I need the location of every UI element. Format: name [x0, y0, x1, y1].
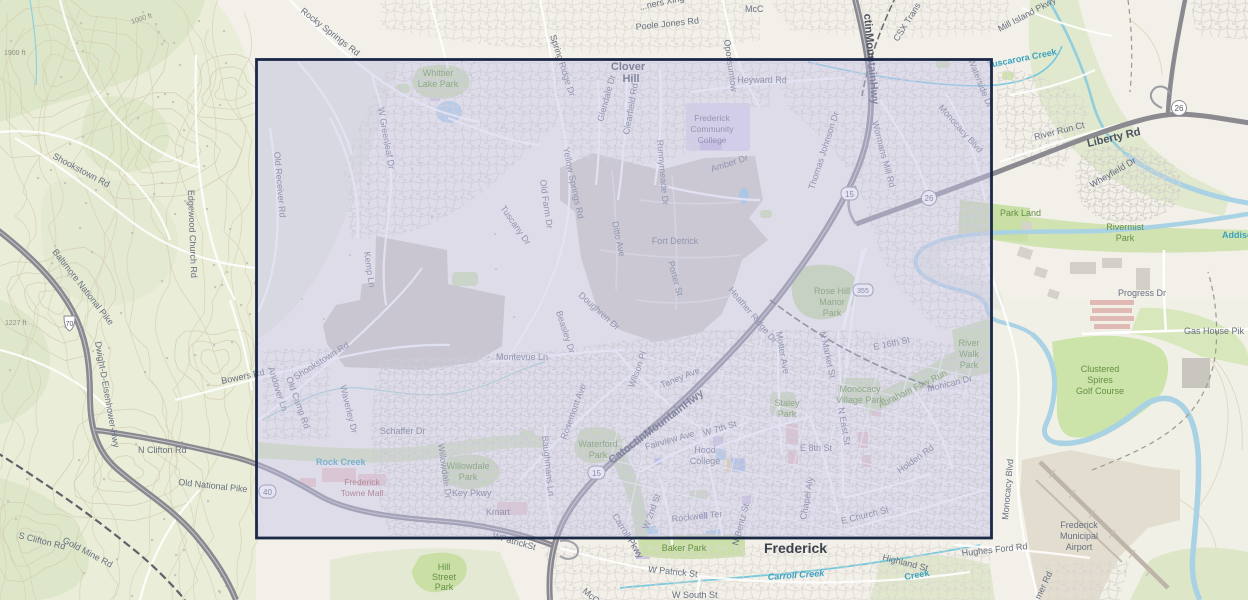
svg-text:Spires: Spires	[1087, 375, 1113, 385]
svg-text:McC: McC	[745, 4, 764, 14]
svg-text:Gas House Pik: Gas House Pik	[1184, 326, 1245, 336]
svg-text:Park Land: Park Land	[1000, 208, 1041, 218]
svg-text:Progress Dr: Progress Dr	[1118, 288, 1166, 298]
svg-text:Clustered: Clustered	[1081, 364, 1120, 374]
svg-text:Park: Park	[1116, 233, 1135, 243]
svg-text:Hill: Hill	[438, 562, 451, 572]
svg-text:26: 26	[1175, 104, 1184, 113]
svg-text:Golf Course: Golf Course	[1076, 386, 1124, 396]
svg-text:W South St: W South St	[672, 590, 718, 600]
svg-text:Frederick: Frederick	[1060, 520, 1098, 530]
svg-text:Municipal: Municipal	[1060, 531, 1098, 541]
svg-text:Addiso: Addiso	[1222, 230, 1248, 240]
svg-text:Park: Park	[435, 582, 454, 592]
svg-text:N Clifton Rd: N Clifton Rd	[138, 445, 187, 455]
svg-text:Rivermist: Rivermist	[1106, 222, 1144, 232]
svg-text:Street: Street	[432, 572, 457, 582]
svg-text:Frederick: Frederick	[764, 540, 827, 556]
svg-text:Airport: Airport	[1066, 542, 1093, 552]
svg-text:Baker Park: Baker Park	[662, 543, 707, 553]
svg-text:1900 ft: 1900 ft	[4, 50, 25, 57]
svg-text:1227 ft: 1227 ft	[5, 320, 26, 327]
svg-text:70: 70	[66, 321, 74, 328]
